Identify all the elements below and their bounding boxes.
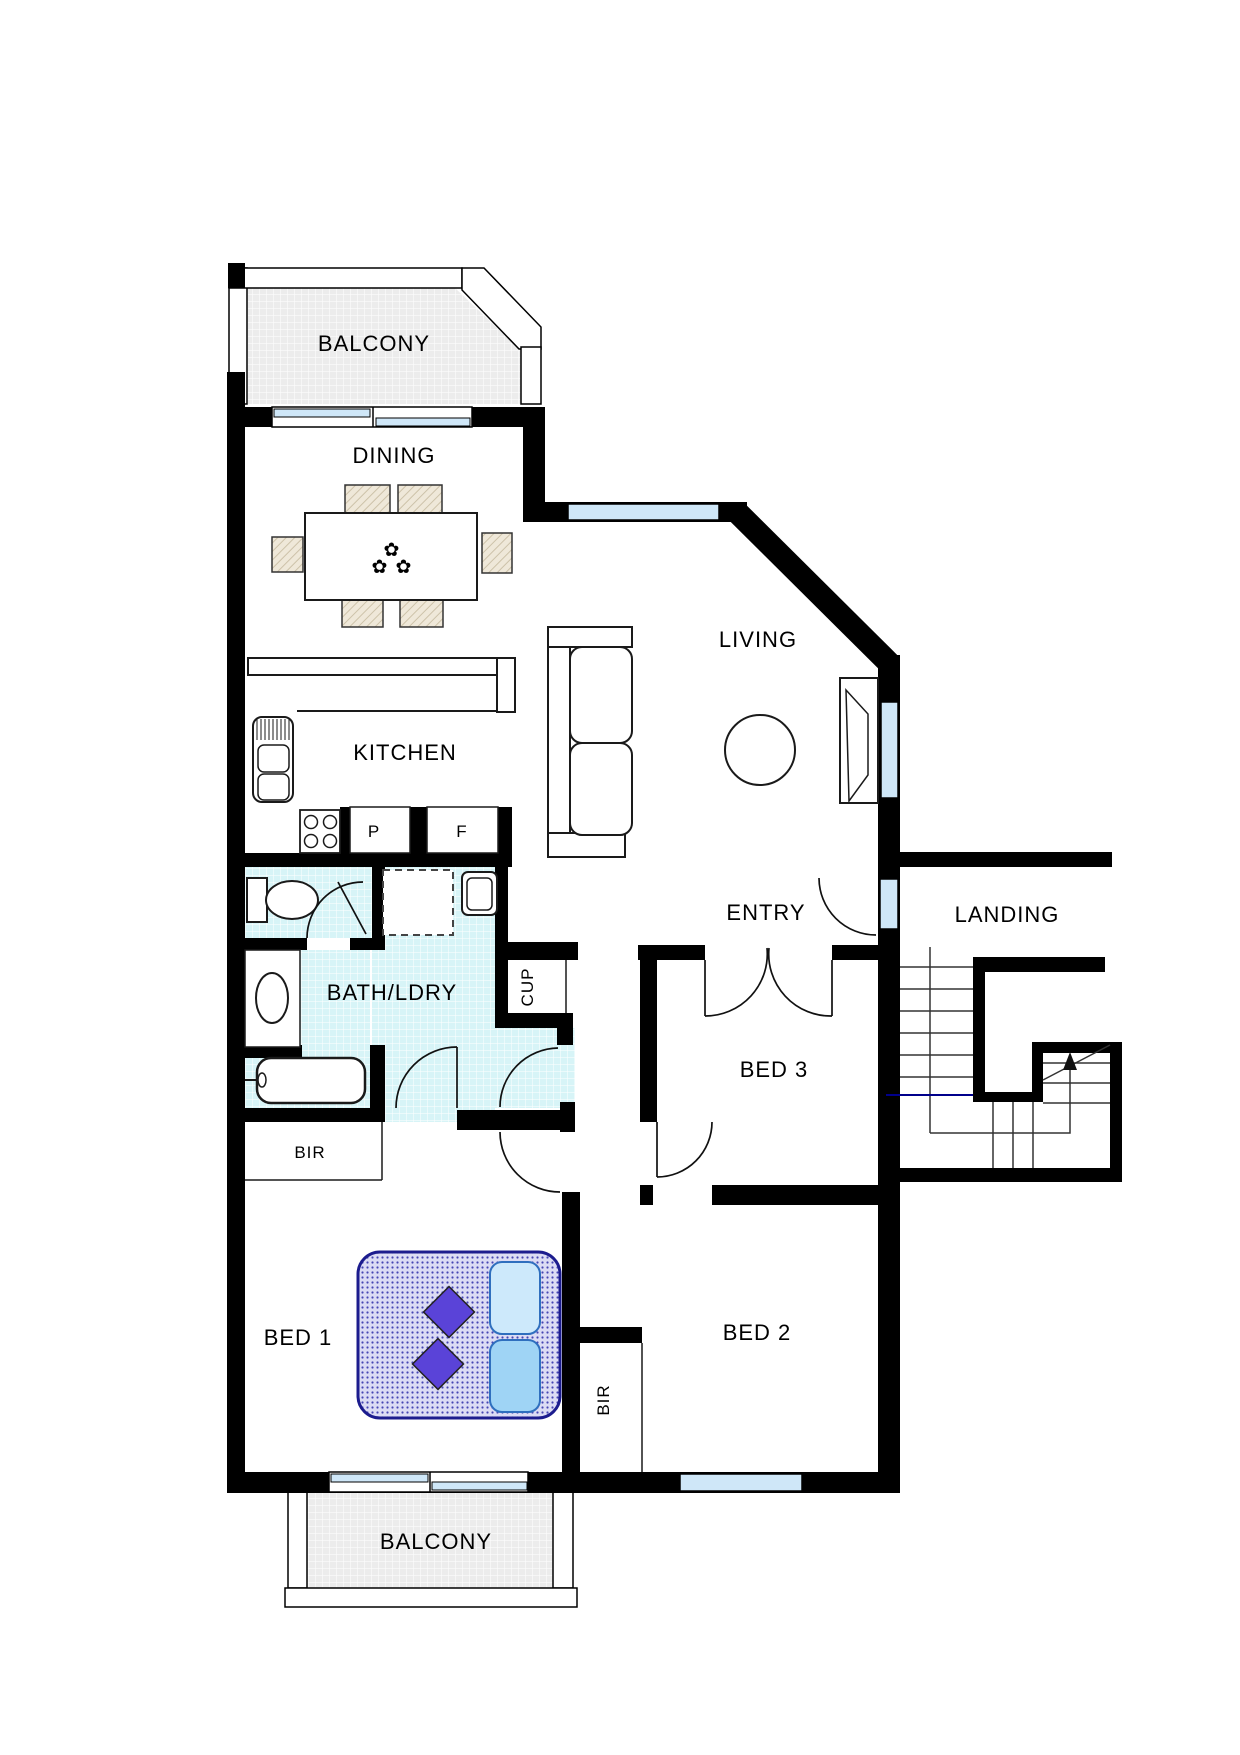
bed1-furniture: [358, 1252, 560, 1418]
bed3-double-door: [705, 948, 832, 1016]
living-furniture: [548, 627, 878, 857]
room-label-bath-ldry: BATH/LDRY: [327, 980, 457, 1005]
room-label-balcony-bottom: BALCONY: [380, 1529, 492, 1554]
dining-chair: [482, 533, 512, 573]
living-window: [568, 504, 719, 520]
kitchen-sink: [253, 717, 293, 802]
sliding-panel-glass: [274, 409, 370, 417]
wall-hall-stub: [560, 1102, 575, 1132]
wall-wc-bottom-stub: [350, 938, 382, 950]
wall-stairwell-bottom: [985, 1092, 1032, 1102]
laundry-tub: [462, 872, 497, 915]
sliding-panel-glass: [376, 418, 470, 426]
floor-plan-page: ✿ ✿ ✿: [0, 0, 1240, 1755]
wall-stairwell-top: [973, 957, 1105, 972]
room-label-kitchen: KITCHEN: [353, 740, 457, 765]
wall-stairwell-left: [973, 957, 985, 1102]
sliding-panel-glass: [331, 1474, 428, 1482]
tv-unit: [840, 678, 878, 803]
wall-bir1-top: [227, 1108, 382, 1122]
wall-hall-south: [457, 1110, 562, 1130]
floor-plan: ✿ ✿ ✿: [0, 0, 1240, 1755]
wall-left: [227, 372, 245, 1493]
room-label-bed2: BED 2: [723, 1320, 792, 1345]
label-bir-bed2: BIR: [594, 1384, 613, 1415]
entry-door-swing: [819, 878, 876, 935]
wall-stub-stove: [340, 807, 350, 853]
wall-bed2-top: [712, 1185, 900, 1205]
bed1-door-swing: [500, 1132, 560, 1192]
wall-landing-top: [900, 852, 1112, 867]
stair-treads-winder: [1043, 1045, 1110, 1103]
pillow: [490, 1340, 540, 1412]
room-label-bed3: BED 3: [740, 1057, 809, 1082]
room-label-bed1: BED 1: [264, 1325, 333, 1350]
balcony-corner-post: [228, 263, 245, 288]
wall-stub-fridge: [498, 807, 512, 853]
bathtub: [245, 1058, 365, 1103]
sliding-panel-glass: [432, 1482, 527, 1490]
room-label-balcony-top: BALCONY: [318, 331, 430, 356]
wall-kitchen-bottom: [227, 853, 512, 867]
balcony-rail-right: [521, 347, 541, 404]
flower-icon: ✿: [372, 557, 389, 578]
label-bir-bed1: BIR: [294, 1143, 325, 1162]
vanity-basin: [245, 950, 300, 1047]
up-arrow-icon: [1063, 1052, 1077, 1070]
kitchen-bench-top: [248, 658, 515, 675]
sofa: [548, 627, 632, 857]
room-label-landing: LANDING: [955, 902, 1060, 927]
stair-treads-lower: [993, 1102, 1033, 1168]
coffee-table: [725, 715, 795, 785]
wall-bir2-top: [577, 1327, 642, 1343]
wall-bed3-left: [640, 945, 657, 1122]
stair-treads-upper: [900, 967, 973, 1077]
dining-chair: [398, 485, 442, 513]
label-pantry: P: [368, 822, 380, 841]
wall-step: [523, 407, 545, 522]
shower-base: [383, 870, 453, 935]
wall-stair-enclosure-top: [1032, 1042, 1122, 1053]
balcony2-rail-left: [288, 1490, 307, 1588]
flower-icon: ✿: [396, 557, 413, 578]
wall-wc-bottom: [245, 938, 307, 950]
balcony2-rail-bottom: [285, 1588, 577, 1607]
label-cup: CUP: [518, 968, 537, 1007]
balcony2-rail-right: [553, 1490, 573, 1588]
wall-cup-top: [495, 942, 578, 960]
wall-bed2-top-stub: [640, 1185, 653, 1205]
stairs: [886, 947, 1110, 1168]
wall-bed3-top-left: [638, 945, 705, 960]
dining-set: ✿ ✿ ✿: [272, 485, 512, 627]
dining-chair: [342, 600, 383, 627]
wall-cup-stub: [557, 1013, 573, 1045]
balcony-rail-top: [229, 268, 462, 288]
dining-chair: [400, 600, 443, 627]
wall-bed3-top-right: [832, 945, 880, 960]
label-fridge: F: [456, 822, 467, 841]
stove-cooktop: [300, 810, 340, 853]
kitchen-bench-return: [497, 658, 515, 712]
dining-chair: [272, 537, 303, 572]
room-label-living: LIVING: [719, 627, 797, 652]
dining-chair: [345, 485, 390, 513]
living-side-window: [881, 702, 898, 798]
dining-sliding-door: [272, 407, 472, 427]
bed2-window: [680, 1474, 802, 1491]
wall-landing-bottom: [900, 1168, 1122, 1182]
toilet: [247, 878, 318, 922]
room-label-dining: DINING: [353, 443, 436, 468]
wall-stub-pf: [410, 807, 427, 853]
wall-stair-enclosure-right: [1110, 1042, 1122, 1182]
entry-door-leaf: [880, 879, 898, 929]
room-label-entry: ENTRY: [726, 900, 805, 925]
bed1-sliding-door: [329, 1472, 528, 1492]
pillow: [490, 1262, 540, 1334]
bed2-door: [657, 1122, 712, 1177]
